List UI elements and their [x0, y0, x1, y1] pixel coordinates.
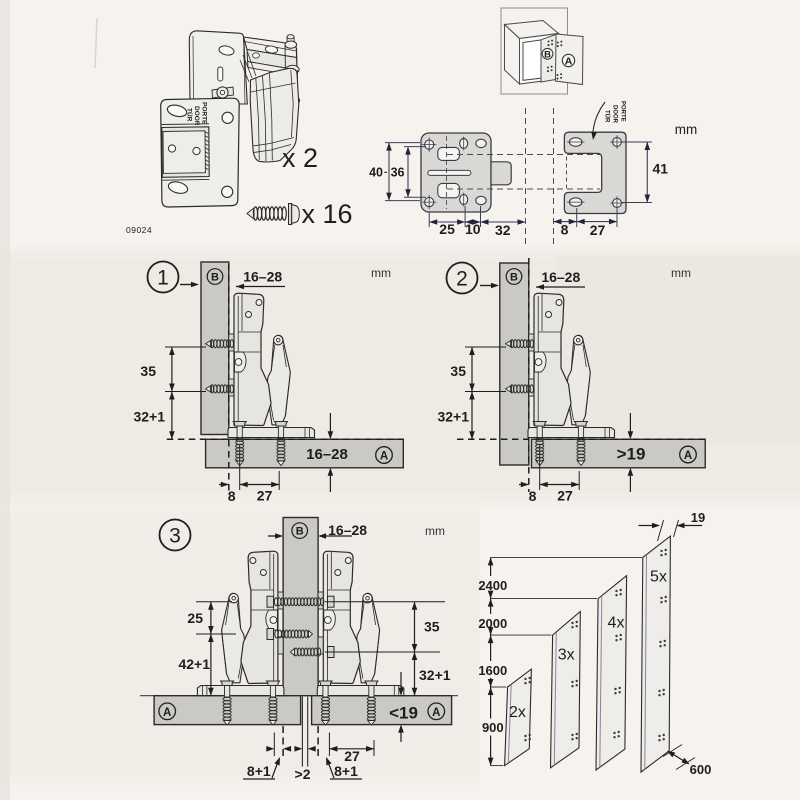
svg-text:16–28: 16–28 [306, 446, 348, 463]
svg-text:35: 35 [424, 619, 440, 635]
svg-text:27: 27 [257, 488, 273, 504]
svg-text:B: B [211, 272, 219, 284]
svg-text:<19: <19 [389, 704, 418, 723]
svg-text:A: A [684, 450, 692, 462]
svg-text:27: 27 [590, 222, 606, 238]
svg-text:09024: 09024 [126, 225, 152, 235]
svg-text:4x: 4x [608, 615, 625, 632]
svg-text:2000: 2000 [478, 616, 507, 631]
svg-text:25: 25 [439, 221, 455, 237]
svg-text:40: 40 [369, 166, 383, 180]
svg-text:900: 900 [482, 720, 504, 735]
svg-text:32+1: 32+1 [437, 409, 469, 425]
svg-text:>2: >2 [295, 766, 311, 782]
svg-text:B: B [296, 526, 304, 538]
svg-text:32+1: 32+1 [419, 667, 451, 683]
svg-text:2: 2 [456, 268, 468, 291]
svg-text:16–28: 16–28 [243, 269, 282, 285]
svg-text:35: 35 [140, 363, 156, 379]
svg-text:36: 36 [391, 166, 405, 180]
svg-text:32: 32 [495, 222, 511, 238]
svg-text:8: 8 [529, 488, 537, 504]
svg-text:8: 8 [228, 488, 236, 504]
svg-text:600: 600 [690, 762, 712, 777]
svg-text:3x: 3x [558, 647, 575, 664]
svg-text:10: 10 [465, 221, 481, 237]
svg-text:3: 3 [169, 525, 181, 548]
svg-text:A: A [163, 707, 171, 719]
svg-text:B: B [510, 272, 518, 284]
svg-text:19: 19 [691, 510, 705, 525]
svg-text:mm: mm [671, 266, 691, 280]
svg-text:25: 25 [187, 610, 203, 626]
svg-text:8+1: 8+1 [334, 763, 358, 779]
svg-text:8+1: 8+1 [247, 763, 271, 779]
svg-text:>19: >19 [617, 445, 646, 464]
svg-text:PORTE: PORTE [620, 101, 626, 122]
svg-text:16–28: 16–28 [541, 269, 580, 285]
svg-text:A: A [432, 707, 440, 719]
svg-text:PORTE: PORTE [201, 102, 208, 125]
svg-text:32+1: 32+1 [133, 409, 165, 425]
svg-text:mm: mm [675, 122, 698, 137]
svg-text:2400: 2400 [478, 578, 507, 593]
svg-text:DOOR: DOOR [193, 106, 200, 126]
svg-text:27: 27 [557, 488, 573, 504]
svg-text:1: 1 [157, 267, 169, 290]
svg-text:TÜR: TÜR [186, 108, 195, 122]
svg-text:5x: 5x [650, 569, 667, 586]
svg-text:x 16: x 16 [301, 199, 352, 229]
svg-text:B: B [544, 49, 551, 60]
svg-text:42+1: 42+1 [178, 656, 210, 672]
svg-text:8: 8 [561, 222, 569, 238]
svg-text:TÜR: TÜR [604, 110, 611, 123]
svg-text:16–28: 16–28 [328, 522, 367, 538]
svg-text:27: 27 [344, 748, 360, 764]
svg-text:DOOR: DOOR [612, 105, 618, 124]
svg-text:-: - [384, 167, 387, 178]
svg-text:x 2: x 2 [282, 143, 318, 173]
svg-text:41: 41 [653, 161, 669, 177]
svg-text:35: 35 [450, 363, 466, 379]
svg-text:mm: mm [371, 266, 391, 280]
svg-text:mm: mm [425, 524, 445, 538]
svg-text:A: A [380, 451, 388, 463]
svg-text:A: A [565, 56, 573, 68]
svg-text:1600: 1600 [478, 663, 507, 678]
svg-text:2x: 2x [509, 704, 526, 721]
